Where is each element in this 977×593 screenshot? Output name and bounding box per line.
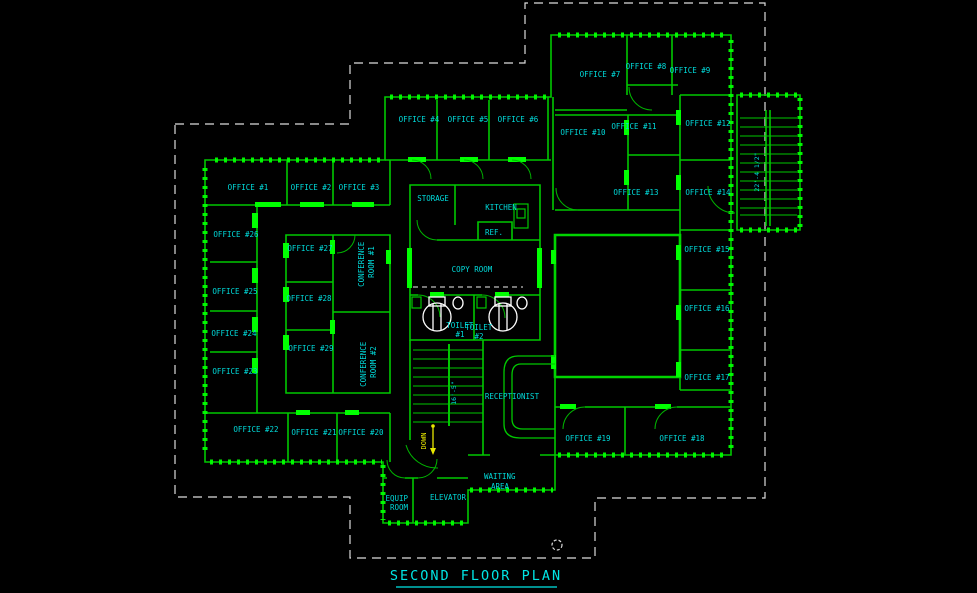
room-label-office-14: OFFICE #14 bbox=[685, 188, 731, 197]
room-label-office-17: OFFICE #17 bbox=[684, 373, 729, 382]
room-label-office-8: OFFICE #8 bbox=[626, 62, 667, 71]
room-label-equip-room: EQUIP ROOM bbox=[385, 494, 412, 512]
interior-staircase bbox=[413, 344, 483, 426]
room-label-office-4: OFFICE #4 bbox=[399, 115, 440, 124]
room-label-office-1: OFFICE #1 bbox=[228, 183, 269, 192]
room-label-office-3: OFFICE #3 bbox=[339, 183, 380, 192]
room-label-office-27: OFFICE #27 bbox=[287, 244, 332, 253]
room-label-office-21: OFFICE #21 bbox=[291, 428, 336, 437]
stair-down-arrow bbox=[430, 424, 436, 455]
room-label-conference-2: CONFERENCE ROOM #2 bbox=[359, 337, 378, 387]
room-label-toilet-2: TOILET #2 bbox=[465, 323, 497, 341]
room-label-ref: REF. bbox=[485, 228, 503, 237]
wall-jamb-bars bbox=[252, 110, 681, 415]
room-label-office-24: OFFICE #24 bbox=[211, 329, 257, 338]
stair-down-label: DOWN bbox=[420, 433, 428, 450]
room-label-office-5: OFFICE #5 bbox=[448, 115, 489, 124]
room-label-office-10: OFFICE #10 bbox=[560, 128, 606, 137]
room-label-office-15: OFFICE #15 bbox=[684, 245, 729, 254]
room-label-office-26: OFFICE #26 bbox=[213, 230, 259, 239]
room-label-office-29: OFFICE #29 bbox=[288, 344, 333, 353]
exterior-staircase bbox=[740, 110, 797, 226]
room-label-elevator: ELEVATOR bbox=[430, 493, 467, 502]
door-arcs bbox=[337, 87, 735, 478]
room-label-office-2: OFFICE #2 bbox=[291, 183, 332, 192]
property-boundary-dashed bbox=[175, 3, 765, 558]
room-label-kitchen: KITCHEN bbox=[485, 203, 517, 212]
floor-plan-canvas: OFFICE #1 OFFICE #2 OFFICE #3 OFFICE #4 … bbox=[0, 0, 977, 593]
window-hatching bbox=[205, 35, 800, 523]
cad-floor-plan-drawing: OFFICE #1 OFFICE #2 OFFICE #3 OFFICE #4 … bbox=[0, 0, 977, 593]
walls bbox=[205, 35, 800, 523]
room-label-office-20: OFFICE #20 bbox=[338, 428, 384, 437]
room-label-office-22: OFFICE #22 bbox=[233, 425, 278, 434]
room-label-office-18: OFFICE #18 bbox=[659, 434, 705, 443]
room-label-storage: STORAGE bbox=[417, 194, 449, 203]
room-label-office-12: OFFICE #12 bbox=[685, 119, 730, 128]
page-title: SECOND FLOOR PLAN bbox=[390, 568, 562, 584]
room-label-office-13: OFFICE #13 bbox=[613, 188, 658, 197]
room-label-office-9: OFFICE #9 bbox=[670, 66, 711, 75]
room-label-office-23: OFFICE #23 bbox=[212, 367, 257, 376]
room-label-office-28: OFFICE #28 bbox=[286, 294, 332, 303]
room-label-copy-room: COPY ROOM bbox=[452, 265, 493, 274]
room-label-office-6: OFFICE #6 bbox=[498, 115, 539, 124]
room-label-office-11: OFFICE #11 bbox=[611, 122, 656, 131]
exterior-stair-dimension: 22'-4 1/2" bbox=[753, 152, 761, 191]
room-label-office-25: OFFICE #25 bbox=[212, 287, 257, 296]
room-label-conference-1: CONFERENCE ROOM #1 bbox=[357, 237, 376, 287]
room-label-office-7: OFFICE #7 bbox=[580, 70, 621, 79]
interior-stair-dimension: 16'-5" bbox=[450, 381, 458, 404]
room-label-receptionist: RECEPTIONIST bbox=[485, 392, 540, 401]
room-label-office-16: OFFICE #16 bbox=[684, 304, 730, 313]
room-label-office-19: OFFICE #19 bbox=[565, 434, 610, 443]
drawing-title: SECOND FLOOR PLAN bbox=[390, 568, 562, 587]
